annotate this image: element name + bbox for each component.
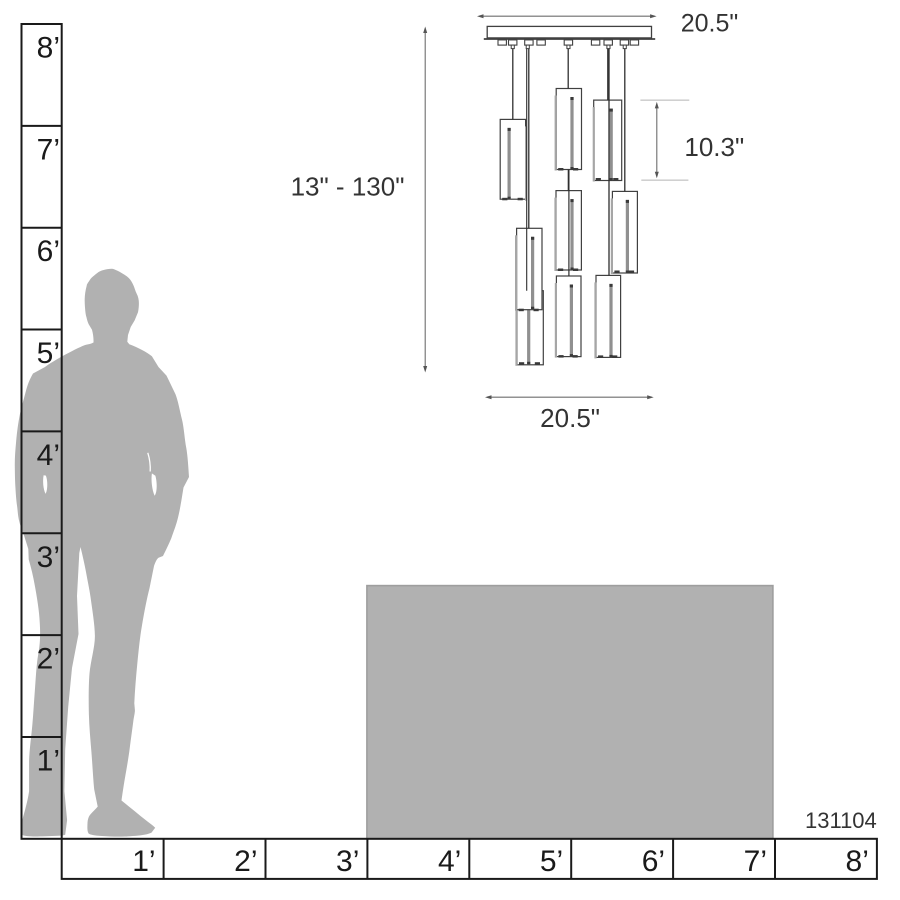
svg-text:6’: 6’ — [37, 235, 60, 268]
svg-text:2’: 2’ — [37, 643, 60, 676]
svg-text:10.3": 10.3" — [684, 132, 744, 162]
svg-text:3’: 3’ — [37, 541, 60, 574]
svg-text:13" - 130": 13" - 130" — [291, 172, 405, 202]
svg-text:8’: 8’ — [846, 845, 869, 878]
svg-text:1’: 1’ — [37, 744, 60, 777]
svg-text:4’: 4’ — [37, 439, 60, 472]
svg-text:4’: 4’ — [438, 845, 461, 878]
svg-text:7’: 7’ — [37, 133, 60, 166]
svg-text:20.5": 20.5" — [540, 403, 600, 433]
svg-text:3’: 3’ — [336, 845, 359, 878]
svg-text:6’: 6’ — [642, 845, 665, 878]
svg-text:131104: 131104 — [805, 808, 877, 833]
svg-text:5’: 5’ — [37, 337, 60, 370]
svg-text:8’: 8’ — [37, 32, 60, 65]
svg-text:5’: 5’ — [540, 845, 563, 878]
svg-text:20.5": 20.5" — [681, 9, 739, 37]
svg-text:1’: 1’ — [132, 845, 155, 878]
svg-text:2’: 2’ — [234, 845, 257, 878]
svg-text:7’: 7’ — [744, 845, 767, 878]
